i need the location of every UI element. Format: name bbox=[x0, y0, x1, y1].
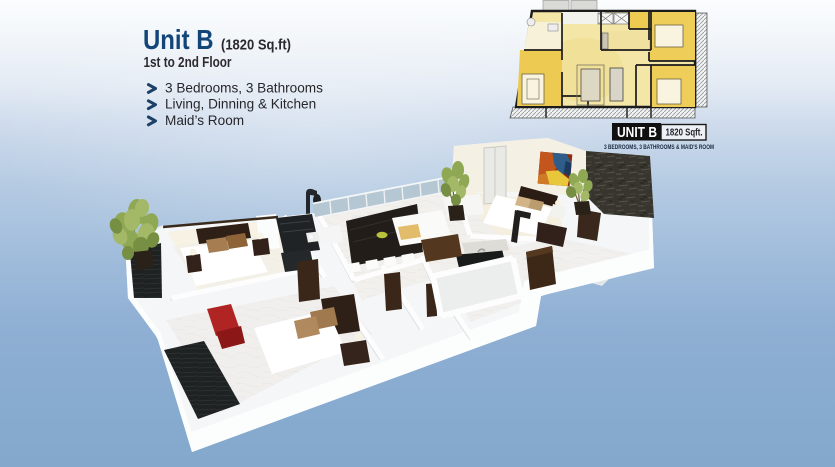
svg-text:1820 Sqft.: 1820 Sqft. bbox=[666, 128, 703, 139]
svg-text:(1820 Sq.ft): (1820 Sq.ft) bbox=[221, 37, 291, 54]
svg-text:3 Bedrooms, 3 Bathrooms: 3 Bedrooms, 3 Bathrooms bbox=[165, 80, 323, 95]
svg-text:UNIT B: UNIT B bbox=[617, 125, 657, 141]
svg-text:Unit B: Unit B bbox=[143, 24, 214, 55]
svg-text:Living, Dinning & Kitchen: Living, Dinning & Kitchen bbox=[165, 97, 316, 112]
svg-text:3 BEDROOMS, 3 BATHROOMS & MAID: 3 BEDROOMS, 3 BATHROOMS & MAID'S ROOM bbox=[604, 145, 714, 151]
svg-text:Maid’s Room: Maid’s Room bbox=[165, 113, 244, 128]
svg-text:1st to 2nd Floor: 1st to 2nd Floor bbox=[144, 55, 232, 71]
